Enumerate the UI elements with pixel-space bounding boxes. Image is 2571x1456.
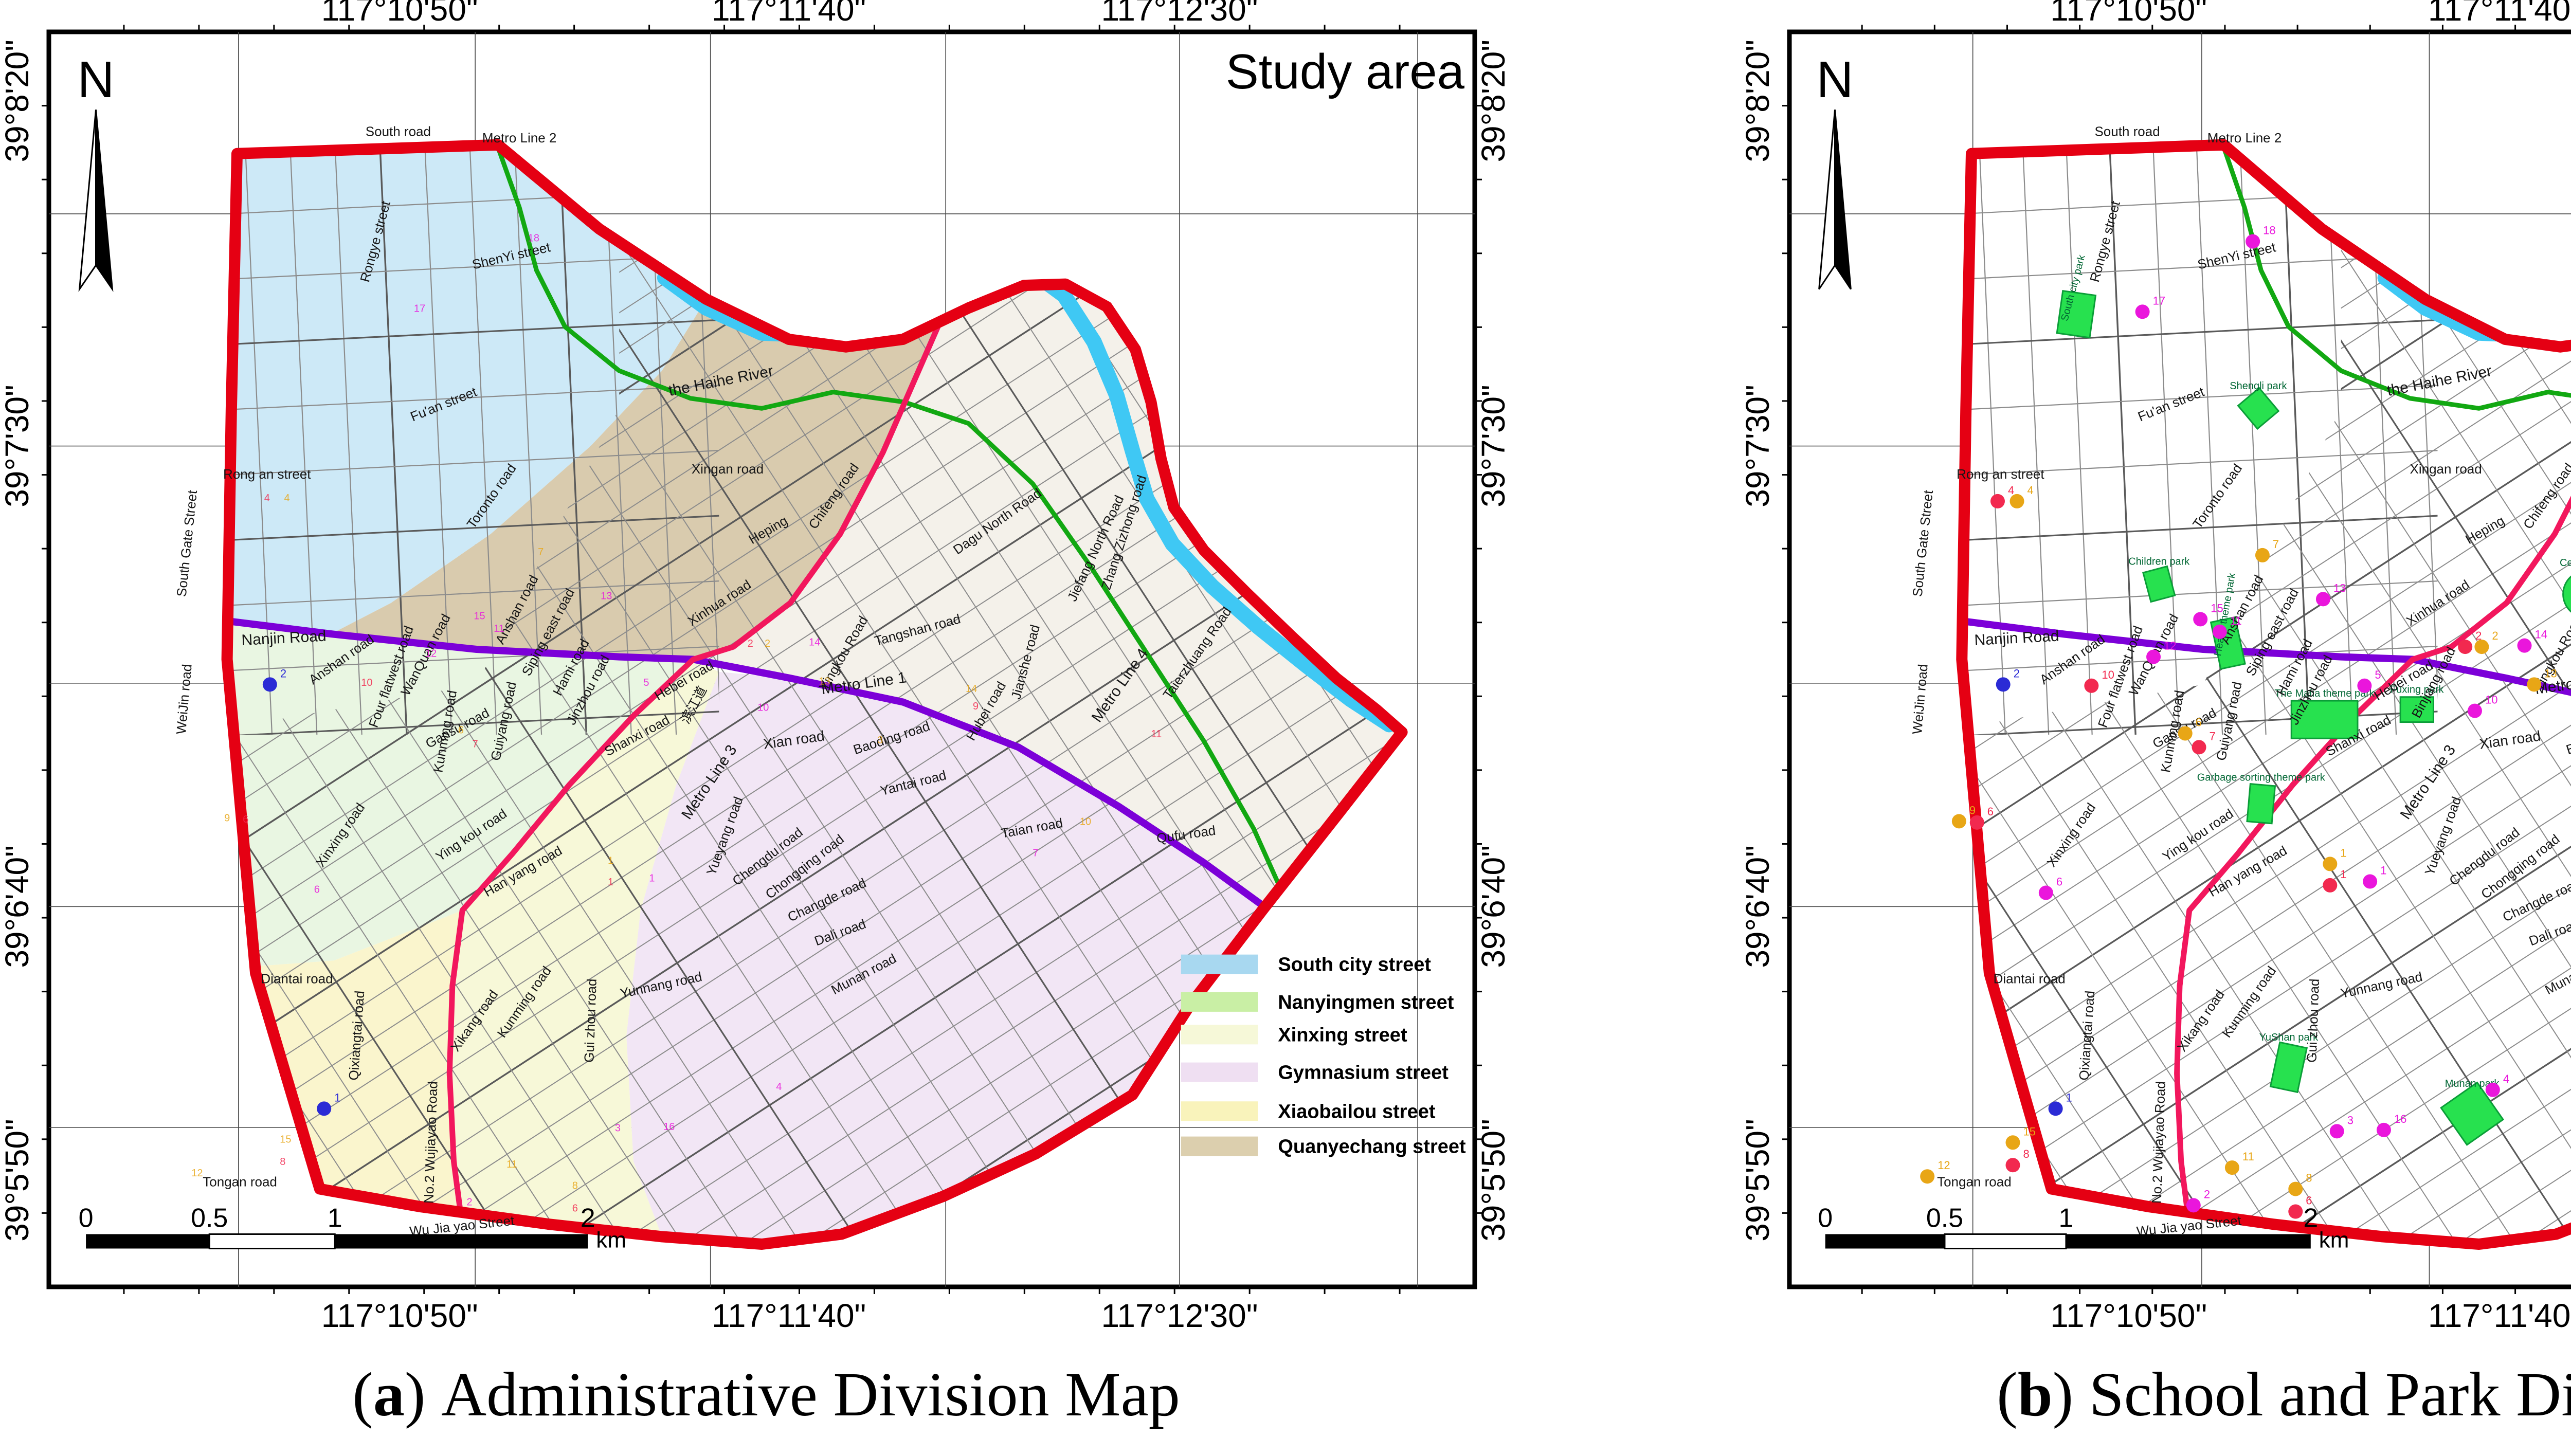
school-number: 7	[473, 738, 478, 750]
school-number: 13	[601, 590, 612, 602]
school-number: 2	[280, 667, 286, 680]
axis-label-longitude-bottom: 117°10'50"	[2050, 1297, 2207, 1334]
axis-label-latitude-left: 39°7'30"	[1739, 385, 1776, 507]
school-number: 1	[334, 1091, 340, 1104]
school-number: 18	[528, 233, 539, 244]
panel-b-school-park-map: 117°10'50"117°11'40"117°12'30"117°10'50"…	[1608, 0, 2571, 1456]
legend-label: Nanyingmen street	[1278, 992, 1454, 1013]
legend-swatch	[1181, 1101, 1258, 1121]
school-number: 13	[2333, 581, 2346, 594]
school-number: 6	[2056, 876, 2062, 888]
scalebar-number: 2	[581, 1203, 595, 1233]
school-number: 16	[663, 1121, 675, 1133]
caption-a-title: Administrative Division Map	[441, 1359, 1180, 1431]
caption-a-paren-close: )	[405, 1359, 441, 1431]
panel-a-administrative-map: 117°10'50"117°11'40"117°12'30"117°10'50"…	[0, 0, 1608, 1456]
school-number: 7	[2273, 538, 2279, 551]
school-dot-primary	[2486, 1083, 2500, 1097]
park-label: Children park	[2128, 556, 2190, 568]
school-dot-primary	[2357, 679, 2371, 693]
school-number: 11	[494, 623, 504, 634]
axis-label-longitude-top: 117°10'50"	[2050, 0, 2207, 28]
scalebar-number: 0	[79, 1203, 94, 1233]
school-dot-other	[263, 677, 277, 691]
scalebar-seg-black	[335, 1234, 588, 1248]
school-dot-other	[317, 1101, 331, 1116]
axis-label-longitude-top: 117°11'40"	[712, 0, 866, 28]
road-label: Gui zhou road	[2304, 978, 2322, 1063]
school-number: 3	[877, 735, 883, 746]
legend-swatch	[1181, 1063, 1258, 1082]
axis-label-latitude-right: 39°8'20"	[1475, 40, 1512, 162]
school-dot-senior	[1990, 494, 2005, 508]
school-dot-primary	[2039, 886, 2053, 900]
scalebar-number: 0.5	[1926, 1203, 1963, 1233]
school-number: 14	[2535, 628, 2547, 641]
caption-b-letter: b	[2018, 1359, 2053, 1431]
scalebar-seg-white	[1945, 1234, 2066, 1248]
caption-b-paren-open: (	[1997, 1359, 2018, 1431]
school-number: 12	[425, 648, 437, 660]
scalebar-number: 1	[2059, 1203, 2074, 1233]
school-number: 6	[2196, 716, 2202, 729]
school-number: 11	[2230, 614, 2242, 627]
school-number: 17	[2153, 294, 2165, 307]
school-number: 1	[2340, 868, 2346, 881]
school-number: 10	[757, 702, 769, 714]
school-number: 8	[572, 1180, 578, 1192]
axis-label-longitude-bottom: 117°12'30"	[1101, 1297, 1258, 1334]
axis-label-latitude-right: 39°5'50"	[1475, 1119, 1512, 1242]
school-number: 4	[2027, 484, 2034, 497]
school-number: 8	[2306, 1172, 2312, 1185]
school-dot-primary	[2316, 592, 2330, 606]
school-number: 10	[1080, 816, 1091, 828]
school-dot-middle	[1952, 814, 1966, 828]
school-number: 13	[819, 676, 830, 687]
school-dot-middle	[2005, 1135, 2020, 1150]
school-dot-middle	[2323, 857, 2337, 871]
school-number: 2	[2204, 1188, 2210, 1200]
school-number: 11	[506, 1159, 517, 1170]
caption-b-title: School and Park Distribution Map	[2089, 1359, 2571, 1431]
scalebar-number: 2	[2303, 1203, 2318, 1233]
caption-a-paren-open: (	[352, 1359, 373, 1431]
school-number: 10	[2485, 694, 2497, 706]
school-number: 15	[474, 610, 485, 622]
school-number: 6	[314, 884, 320, 896]
school-dot-middle	[2225, 1160, 2239, 1175]
legend-label: Xiaobailou street	[1278, 1101, 1436, 1122]
school-number: 10	[2102, 668, 2114, 681]
school-dot-middle	[1920, 1169, 1934, 1184]
park-label: Shengli park	[2230, 380, 2287, 392]
scalebar-number: 1	[328, 1203, 342, 1233]
school-number: 8	[2023, 1148, 2029, 1160]
school-number: 6	[1987, 805, 1994, 818]
scalebar-seg-black	[1825, 1234, 1945, 1248]
school-dot-primary	[2330, 1124, 2344, 1138]
road-label: Diantai road	[261, 971, 333, 986]
road-label: Xingan road	[2410, 461, 2482, 477]
legend-swatch	[1181, 955, 1258, 974]
axis-label-latitude-right: 39°7'30"	[1475, 385, 1512, 507]
north-arrow-n: N	[77, 51, 114, 108]
school-number: 2	[765, 638, 770, 649]
road-label: Tongan road	[1937, 1174, 2012, 1190]
axis-label-latitude-left: 39°5'50"	[1739, 1119, 1776, 1242]
legend-label: Quanyechang street	[1278, 1136, 1466, 1158]
park-label: Garbage sorting theme park	[2197, 772, 2326, 784]
school-number: 1	[649, 873, 655, 884]
axis-label-latitude-left: 39°5'50"	[0, 1119, 35, 1242]
road-label: South road	[2094, 124, 2160, 139]
school-number: 13	[2544, 667, 2557, 680]
school-number: 3	[2347, 1114, 2353, 1126]
school-number: 15	[2211, 602, 2223, 614]
legend-swatch	[1181, 992, 1258, 1012]
scalebar-number: 0	[1818, 1203, 1833, 1233]
scalebar-number: 0.5	[191, 1203, 228, 1233]
school-number: 12	[1938, 1159, 1950, 1172]
road-label: Metro Line 2	[482, 130, 557, 145]
school-number: 4	[2008, 484, 2014, 497]
school-number: 2	[2014, 667, 2020, 680]
school-dot-senior	[2288, 1205, 2303, 1219]
legend-label: Xinxing street	[1278, 1024, 1407, 1046]
legend-label: South city street	[1278, 954, 1431, 976]
school-number: 4	[2503, 1072, 2509, 1085]
school-number: 1	[2340, 846, 2346, 859]
road-label: Xingan road	[692, 461, 764, 477]
school-number: 11	[2242, 1150, 2254, 1163]
north-arrow-n: N	[1816, 51, 1853, 108]
road-label: Rong an street	[223, 466, 311, 482]
scalebar-unit: km	[596, 1227, 626, 1252]
school-dot-primary	[2186, 1198, 2201, 1212]
school-dot-senior	[1970, 815, 1984, 830]
legend-label: Gymnasium street	[1278, 1062, 1449, 1084]
school-dot-primary	[2135, 304, 2150, 319]
school-number: 12	[2164, 640, 2176, 652]
school-number: 6	[243, 814, 248, 825]
school-number: 8	[280, 1156, 285, 1168]
road-label: Diantai road	[1994, 971, 2066, 986]
school-dot-senior	[2323, 878, 2337, 893]
axis-label-longitude-top: 117°11'40"	[2428, 0, 2571, 28]
school-dot-senior	[2084, 679, 2098, 693]
school-dot-primary	[2363, 875, 2377, 889]
school-number: 14	[966, 683, 977, 695]
road-label: Rong an street	[1957, 466, 2044, 482]
caption-panel-b: (b) School and Park Distribution Map	[1831, 1346, 2571, 1444]
axis-label-longitude-bottom: 117°11'40"	[712, 1297, 866, 1334]
school-number: 4	[284, 493, 290, 504]
road-label: South road	[366, 124, 431, 139]
axis-label-longitude-top: 117°10'50"	[321, 0, 478, 28]
road-label: Tongan road	[203, 1174, 277, 1190]
scalebar-seg-white	[209, 1234, 335, 1248]
school-number: 7	[538, 547, 544, 558]
school-dot-primary	[2377, 1123, 2391, 1137]
caption-panel-a: (a) Administrative Division Map	[123, 1346, 1409, 1444]
school-dot-primary	[2193, 612, 2207, 626]
school-dot-middle	[2527, 677, 2541, 691]
school-number: 9	[1969, 804, 1976, 816]
school-number: 7	[1033, 848, 1038, 859]
school-number: 2	[748, 638, 753, 649]
school-number: 9	[973, 701, 979, 712]
school-number: 5	[2375, 668, 2381, 681]
axis-label-latitude-left: 39°7'30"	[0, 385, 35, 507]
school-dot-primary	[2518, 639, 2532, 653]
school-dot-senior	[2005, 1158, 2020, 1172]
school-number: 5	[643, 677, 649, 688]
school-number: 4	[776, 1081, 782, 1093]
school-number: 1	[608, 855, 613, 866]
school-number: 1	[2380, 864, 2386, 877]
axis-label-longitude-bottom: 117°11'40"	[2428, 1297, 2571, 1334]
road-label: Metro Line 2	[2207, 130, 2282, 145]
legend-swatch	[1181, 1025, 1258, 1044]
axis-label-latitude-left: 39°8'20"	[0, 40, 35, 162]
school-number: 16	[2394, 1113, 2406, 1125]
figure-two-map-panels: 117°10'50"117°11'40"117°12'30"117°10'50"…	[0, 0, 2571, 1456]
school-number: 15	[280, 1134, 291, 1145]
scalebar-unit: km	[2319, 1227, 2349, 1252]
school-dot-primary	[2468, 704, 2482, 718]
park-garbage-sorting-theme-park	[2247, 784, 2275, 824]
school-dot-senior	[2458, 640, 2472, 654]
legend-swatch	[1181, 1137, 1258, 1156]
school-number: 7	[2210, 730, 2216, 742]
school-number: 2	[2492, 629, 2498, 642]
school-dot-primary	[2146, 650, 2161, 664]
school-number: 12	[191, 1168, 203, 1179]
school-number: 1	[2066, 1091, 2072, 1104]
study-area-title: Study area	[1226, 44, 1465, 99]
axis-label-latitude-right: 39°6'40"	[1475, 845, 1512, 968]
axis-label-latitude-left: 39°8'20"	[1739, 40, 1776, 162]
school-number: 3	[615, 1122, 621, 1134]
school-number: 14	[809, 637, 820, 648]
scalebar-seg-black	[86, 1234, 209, 1248]
school-number: 9	[224, 812, 230, 824]
school-number: 18	[2263, 224, 2275, 237]
school-dot-middle	[2010, 494, 2024, 508]
school-dot-middle	[2255, 548, 2270, 562]
road-label: Gui zhou road	[581, 978, 600, 1063]
park-label: Center park	[2560, 557, 2571, 569]
school-dot-senior	[2192, 740, 2206, 754]
school-number: 4	[264, 493, 270, 504]
axis-label-latitude-left: 39°6'40"	[0, 845, 35, 968]
school-dot-middle	[2288, 1182, 2303, 1196]
school-number: 6	[458, 725, 464, 736]
school-number: 10	[361, 677, 372, 688]
school-dot-other	[1996, 677, 2011, 691]
scalebar-seg-black	[2066, 1234, 2311, 1248]
school-dot-primary	[2246, 234, 2260, 249]
school-number: 6	[572, 1203, 578, 1214]
school-number: 2	[466, 1196, 472, 1208]
school-number: 1	[608, 877, 613, 888]
school-number: 17	[414, 303, 425, 314]
school-number: 11	[1151, 729, 1162, 740]
school-number: 15	[2023, 1125, 2035, 1138]
axis-label-longitude-top: 117°12'30"	[1101, 0, 1258, 28]
school-dot-middle	[2178, 726, 2193, 741]
axis-label-latitude-left: 39°6'40"	[1739, 845, 1776, 968]
caption-a-letter: a	[373, 1359, 405, 1431]
axis-label-longitude-bottom: 117°10'50"	[321, 1297, 478, 1334]
school-dot-other	[2049, 1101, 2063, 1116]
caption-b-paren-close: )	[2053, 1359, 2089, 1431]
school-dot-middle	[2474, 640, 2489, 654]
school-dot-primary	[2213, 625, 2227, 639]
